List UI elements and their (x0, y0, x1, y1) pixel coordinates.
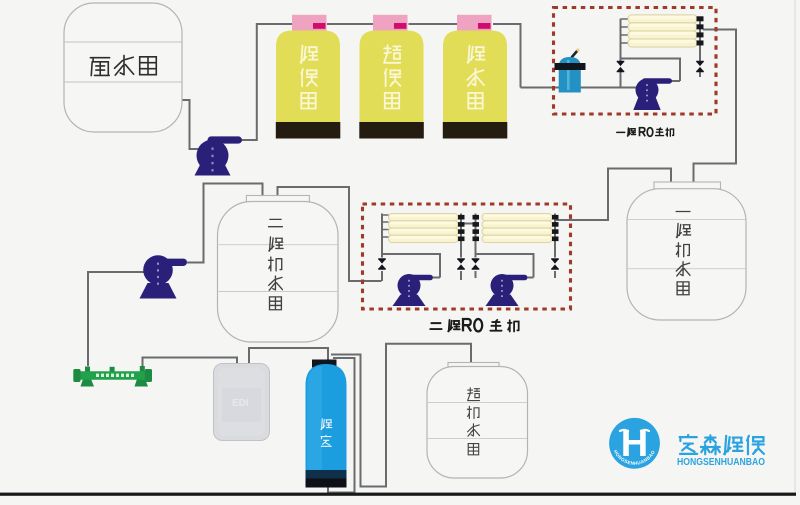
svg-text:EDI: EDI (232, 398, 249, 409)
svg-text:HONGSENHUANBAO: HONGSENHUANBAO (677, 457, 765, 468)
